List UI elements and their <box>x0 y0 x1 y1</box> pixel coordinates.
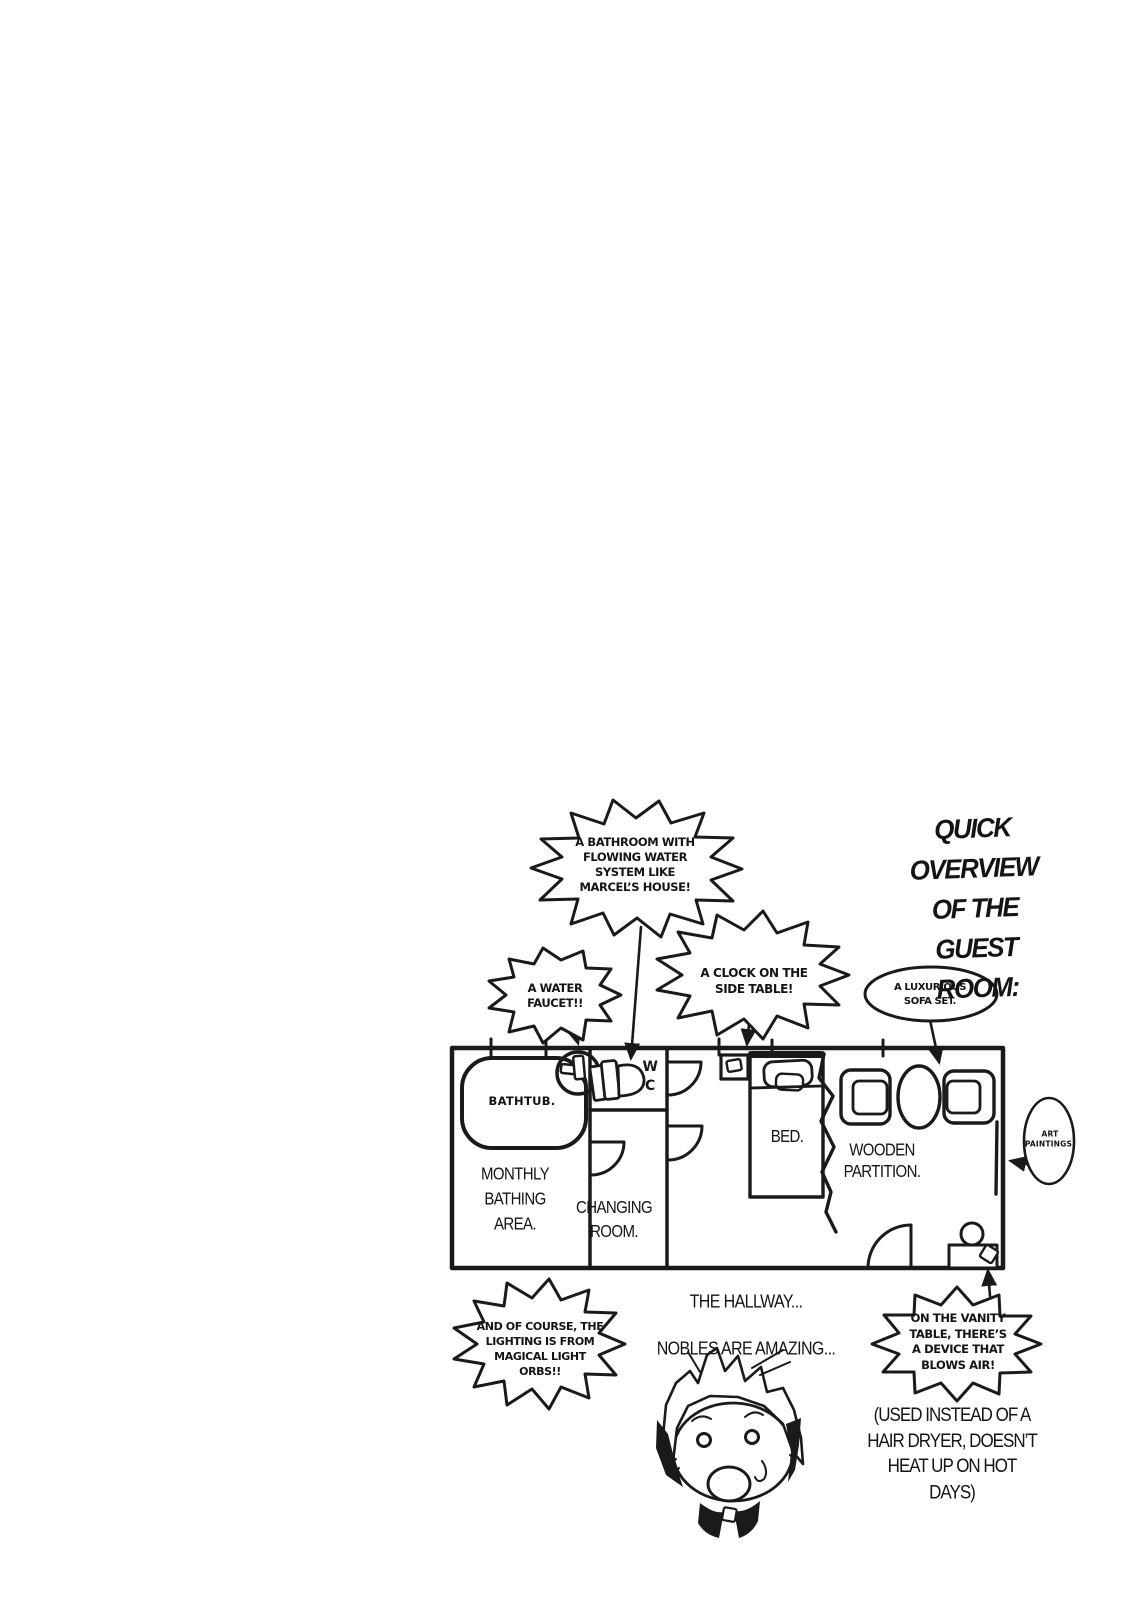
sofa-set <box>841 1066 994 1128</box>
clock-on-table <box>726 1059 742 1072</box>
arrow-to-art <box>1011 1161 1026 1164</box>
art-painting-wall-line <box>996 1122 997 1194</box>
door-arc-entrance <box>868 1225 911 1268</box>
eye-left <box>698 1434 711 1447</box>
label-wooden-partition: WOODEN PARTITION. <box>844 1139 921 1182</box>
arrow-to-sofa <box>930 1020 939 1062</box>
label-monthly-bathing-area: MONTHLY BATHING AREA. <box>481 1162 549 1237</box>
door-arc-wc <box>668 1062 701 1095</box>
caption-hallway: THE HALLWAY... <box>690 1293 803 1314</box>
arrow-to-wc <box>631 927 641 1058</box>
toilet <box>590 1060 644 1100</box>
character-surprised-boy <box>656 1348 803 1538</box>
page-title: QUICK OVERVIEW OF THE GUEST ROOM: <box>896 806 1055 1011</box>
door-arc-changing-bedroom <box>668 1126 702 1160</box>
vanity-mirror <box>961 1223 983 1245</box>
label-bathtub: BATHTUB. <box>489 1094 556 1108</box>
label-wc: W C <box>642 1058 657 1096</box>
door-arc-changing-bathing <box>591 1142 624 1175</box>
collar-left <box>698 1503 724 1538</box>
bubble-text-clock: A CLOCK ON THE SIDE TABLE! <box>700 965 807 997</box>
bubble-text-art-paintings: ART PAINTINGS. <box>1025 1130 1075 1149</box>
caption-dryer-note: (USED INSTEAD OF A HAIR DRYER, DOESN’T H… <box>867 1403 1037 1506</box>
eye-right <box>746 1431 759 1444</box>
caption-nobles: NOBLES ARE AMAZING... <box>657 1340 836 1361</box>
label-changing-room: CHANGING ROOM. <box>576 1196 652 1244</box>
mouth-open <box>708 1467 750 1501</box>
arrow-to-vanity <box>988 1271 990 1296</box>
side-table <box>721 1055 748 1079</box>
arrow-to-clock <box>747 1024 749 1044</box>
bubble-text-water-faucet: A WATER FAUCET!! <box>527 981 583 1011</box>
bubble-text-vanity: ON THE VANITY TABLE, THERE’S A DEVICE TH… <box>909 1311 1006 1373</box>
collar-right <box>734 1501 760 1538</box>
sofa-table <box>898 1066 940 1128</box>
headboard <box>750 1051 823 1058</box>
bubble-text-lighting: AND OF COURSE, THE LIGHTING IS FROM MAGI… <box>477 1319 604 1379</box>
bubble-text-bathroom: A BATHROOM WITH FLOWING WATER SYSTEM LIK… <box>575 835 694 895</box>
vanity-table <box>949 1223 999 1268</box>
manga-page: QUICK OVERVIEW OF THE GUEST ROOM: A BATH… <box>0 0 1127 1602</box>
label-bed: BED. <box>771 1127 804 1146</box>
bubble-text-sofa: A LUXURIOUS SOFA SET. <box>894 981 966 1009</box>
collar-knot <box>722 1507 737 1522</box>
blanket-line <box>751 1086 822 1088</box>
bed <box>750 1051 823 1197</box>
